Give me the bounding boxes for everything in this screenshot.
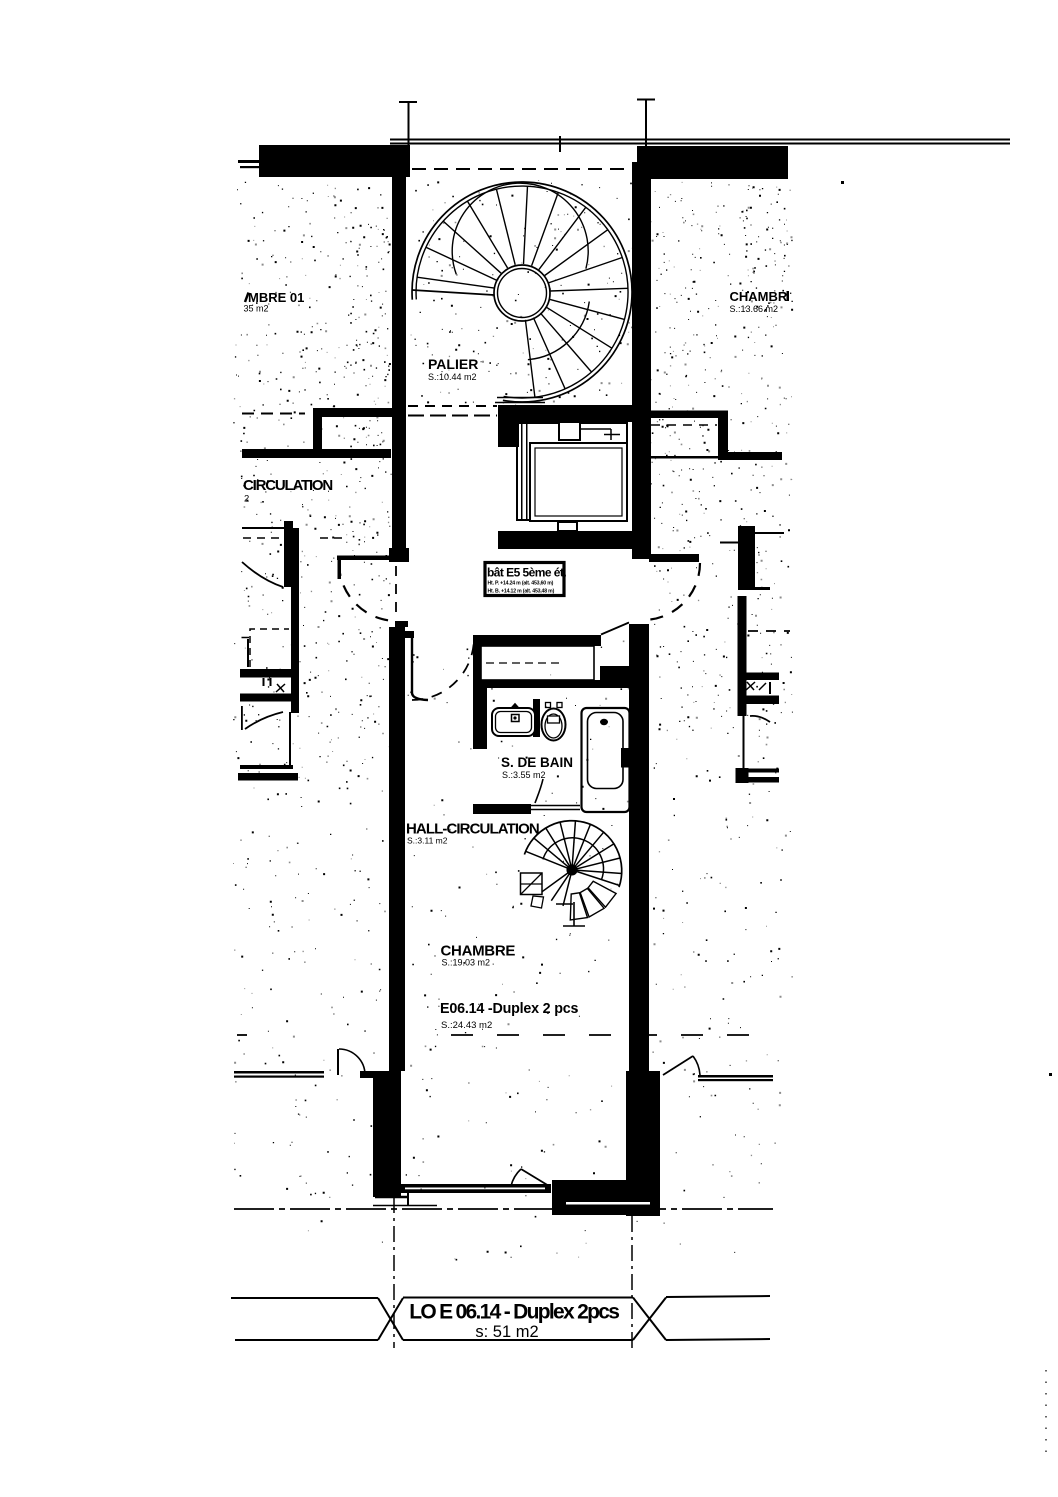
svg-text:S.:10.44 m2: S.:10.44 m2: [428, 372, 477, 382]
svg-text:Ht. P. +14.24 m (alt. 453,60 m: Ht. P. +14.24 m (alt. 453,60 m): [488, 581, 554, 587]
svg-text:bât E5 5ème ét.: bât E5 5ème ét.: [487, 566, 566, 580]
svg-text:S. DE BAIN: S. DE BAIN: [501, 755, 573, 770]
svg-text:S.:13.66 m2: S.:13.66 m2: [730, 304, 779, 314]
svg-text:2: 2: [244, 494, 249, 505]
svg-text:35 m2: 35 m2: [244, 304, 269, 314]
svg-text:Ht. B. +14.12 m (alt. 453,48 m: Ht. B. +14.12 m (alt. 453,48 m): [488, 589, 555, 595]
svg-text:E06.14 -Duplex 2 pcs: E06.14 -Duplex 2 pcs: [440, 1001, 578, 1017]
svg-text:PALIER: PALIER: [428, 356, 478, 372]
svg-text:LO E 06.14 - Duplex 2pcs: LO E 06.14 - Duplex 2pcs: [409, 1301, 619, 1324]
svg-text:s: 51 m2: s: 51 m2: [475, 1323, 538, 1341]
svg-text:S.:3.11 m2: S.:3.11 m2: [407, 836, 448, 846]
svg-text:S.:24.43 m2: S.:24.43 m2: [441, 1020, 492, 1031]
svg-text:S.:19.03 m2: S.:19.03 m2: [442, 958, 491, 968]
svg-text:CIRCULATION: CIRCULATION: [243, 477, 332, 494]
svg-text:S.:3.55 m2: S.:3.55 m2: [502, 770, 546, 780]
